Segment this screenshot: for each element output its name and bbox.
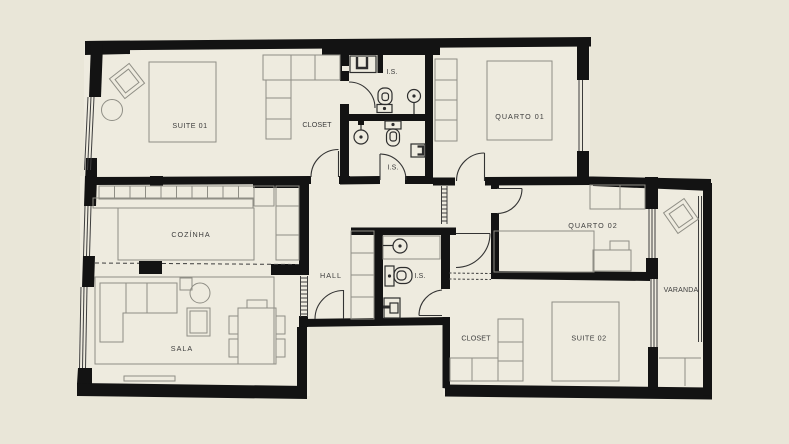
svg-text:CLOSET: CLOSET	[461, 334, 491, 343]
svg-text:VARANDA: VARANDA	[664, 287, 699, 294]
svg-text:I.S.: I.S.	[387, 165, 398, 172]
svg-text:I.S.: I.S.	[386, 69, 397, 76]
svg-text:COZÍNHA: COZÍNHA	[171, 230, 210, 239]
svg-text:SUITE 02: SUITE 02	[571, 334, 606, 343]
svg-text:I.S.: I.S.	[414, 273, 425, 280]
svg-text:SUITE 01: SUITE 01	[172, 121, 207, 130]
svg-text:CLOSET: CLOSET	[302, 120, 332, 129]
svg-text:QUARTO 01: QUARTO 01	[495, 112, 544, 121]
svg-text:QUARTO 02: QUARTO 02	[568, 221, 617, 230]
svg-text:HALL: HALL	[320, 271, 342, 280]
svg-text:SALA: SALA	[171, 344, 193, 353]
